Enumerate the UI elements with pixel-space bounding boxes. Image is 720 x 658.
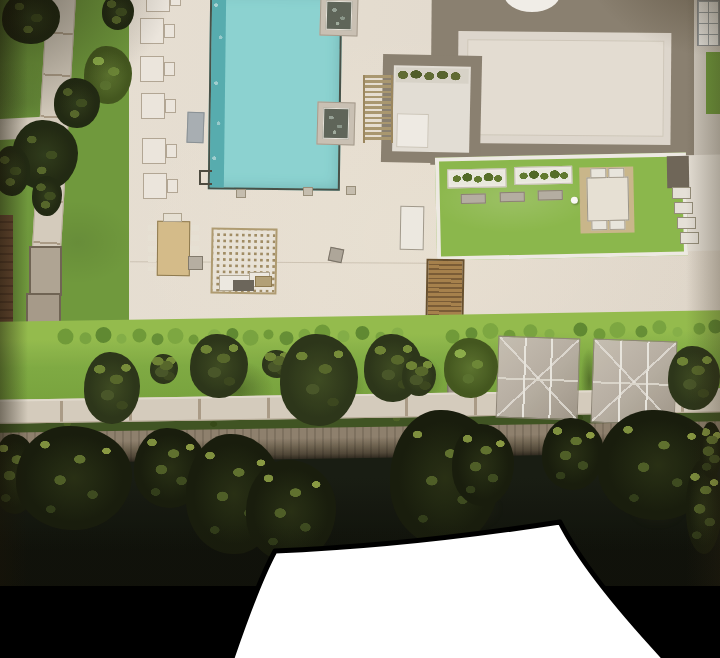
panel-transition-shape [0,0,720,658]
webtoon-panel [0,0,720,658]
